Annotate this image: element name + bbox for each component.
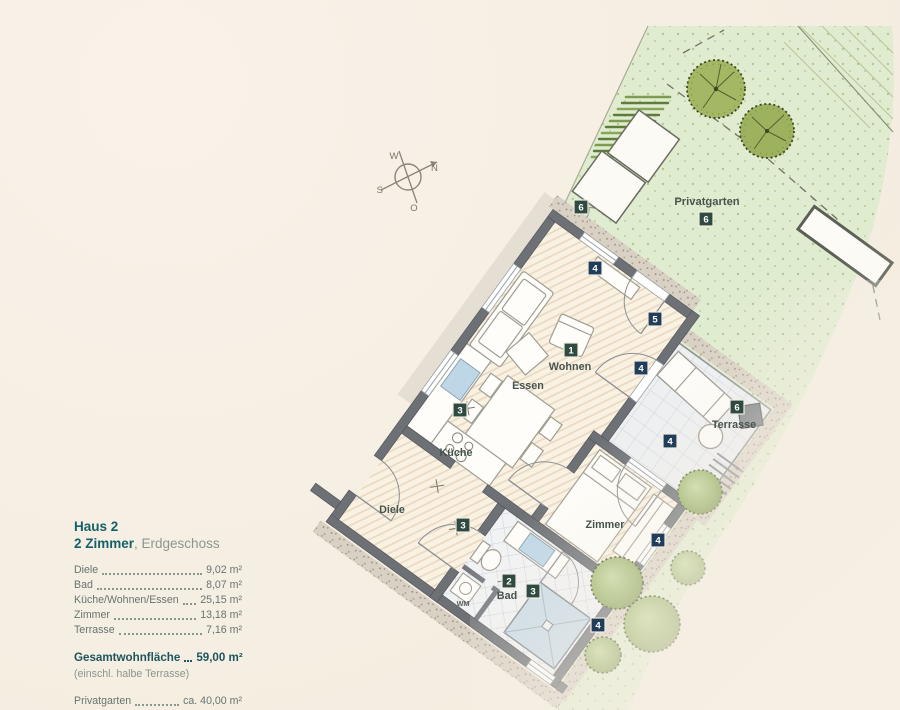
- room-area: 9,02 m²: [206, 563, 242, 578]
- dot-leader: [119, 633, 202, 635]
- dot-leader: [97, 588, 202, 590]
- compass-w: W: [390, 151, 399, 162]
- label-terrasse: Terrasse: [712, 419, 756, 431]
- badge-6: 6: [699, 212, 713, 226]
- room-area: 8,07 m²: [206, 578, 242, 593]
- label-bad: Bad: [497, 590, 517, 602]
- label-wm: WM: [457, 599, 470, 608]
- room-name: Küche/Wohnen/Essen: [74, 593, 179, 608]
- legend-subtitle-bold: 2 Zimmer: [74, 536, 134, 551]
- label-wohnen: Wohnen: [549, 361, 591, 373]
- legend-row: Diele9,02 m²: [74, 563, 242, 578]
- room-area: 7,16 m²: [206, 623, 242, 638]
- svg-text:4: 4: [595, 621, 601, 632]
- badge-1: 1: [564, 343, 578, 357]
- legend: Haus 2 2 Zimmer, Erdgeschoss Diele9,02 m…: [74, 518, 242, 709]
- svg-text:5: 5: [652, 315, 658, 326]
- label-privatgarten: Privatgarten: [674, 196, 739, 208]
- fade-overlay-right: [740, 220, 900, 480]
- badge-6: 6: [730, 400, 744, 414]
- room-name: Zimmer: [74, 608, 110, 623]
- label-zimmer: Zimmer: [585, 519, 625, 531]
- room-area: 13,18 m²: [200, 608, 242, 623]
- legend-row: Bad8,07 m²: [74, 578, 242, 593]
- svg-text:6: 6: [703, 215, 708, 226]
- svg-text:4: 4: [592, 264, 598, 275]
- dot-leader: [135, 704, 179, 706]
- legend-row: Zimmer13,18 m²: [74, 608, 242, 623]
- legend-row: Terrasse7,16 m²: [74, 623, 242, 638]
- svg-text:6: 6: [578, 203, 583, 214]
- dot-leader: [114, 618, 196, 620]
- badge-4: 4: [588, 261, 602, 275]
- compass-s: S: [377, 185, 383, 196]
- badge-4: 4: [591, 618, 605, 632]
- badge-4: 4: [663, 434, 677, 448]
- floorplan-page: W N S O Wohnen Essen Küche Diele Zimmer …: [0, 0, 900, 710]
- label-diele: Diele: [379, 504, 405, 516]
- svg-text:6: 6: [734, 403, 739, 414]
- svg-text:4: 4: [667, 437, 673, 448]
- dot-leader: [184, 660, 192, 662]
- badge-4: 4: [651, 533, 665, 547]
- legend-row: Küche/Wohnen/Essen25,15 m²: [74, 593, 242, 608]
- tree-icon: [687, 60, 745, 118]
- room-name: Diele: [74, 563, 98, 578]
- legend-subtitle-rest: , Erdgeschoss: [134, 536, 220, 551]
- dot-leader: [102, 573, 202, 575]
- garden-area: ca. 40,00 m²: [183, 694, 242, 709]
- total-label: Gesamtwohnfläche: [74, 650, 180, 665]
- badge-6: 6: [574, 200, 588, 214]
- svg-text:3: 3: [457, 406, 462, 417]
- compass-o: O: [410, 203, 417, 214]
- dot-leader: [183, 603, 197, 605]
- svg-text:2: 2: [506, 577, 511, 588]
- room-area: 25,15 m²: [200, 593, 242, 608]
- svg-text:4: 4: [655, 536, 661, 547]
- legend-title: Haus 2: [74, 518, 242, 535]
- badge-3: 3: [453, 403, 467, 417]
- badge-3: 3: [456, 518, 470, 532]
- compass-n: N: [431, 163, 438, 174]
- badge-3: 3: [526, 584, 540, 598]
- room-name: Terrasse: [74, 623, 115, 638]
- svg-text:3: 3: [460, 521, 465, 532]
- svg-text:3: 3: [530, 587, 535, 598]
- legend-total-row: Gesamtwohnfläche59,00 m²: [74, 650, 242, 665]
- svg-text:4: 4: [638, 364, 644, 375]
- total-value: 59,00 m²: [196, 650, 242, 665]
- badge-2: 2: [502, 574, 516, 588]
- room-name: Bad: [74, 578, 93, 593]
- label-essen: Essen: [512, 380, 544, 392]
- compass-rose: W N S O: [377, 151, 438, 214]
- badge-5: 5: [648, 312, 662, 326]
- garden-label: Privatgarten: [74, 694, 131, 709]
- legend-subtitle: 2 Zimmer, Erdgeschoss: [74, 535, 242, 553]
- badge-4: 4: [634, 361, 648, 375]
- legend-note: (einschl. halbe Terrasse): [74, 667, 242, 681]
- tree-icon: [740, 104, 794, 158]
- legend-garden-row: Privatgartenca. 40,00 m²: [74, 694, 242, 709]
- label-kueche: Küche: [440, 447, 473, 459]
- svg-text:1: 1: [568, 346, 574, 357]
